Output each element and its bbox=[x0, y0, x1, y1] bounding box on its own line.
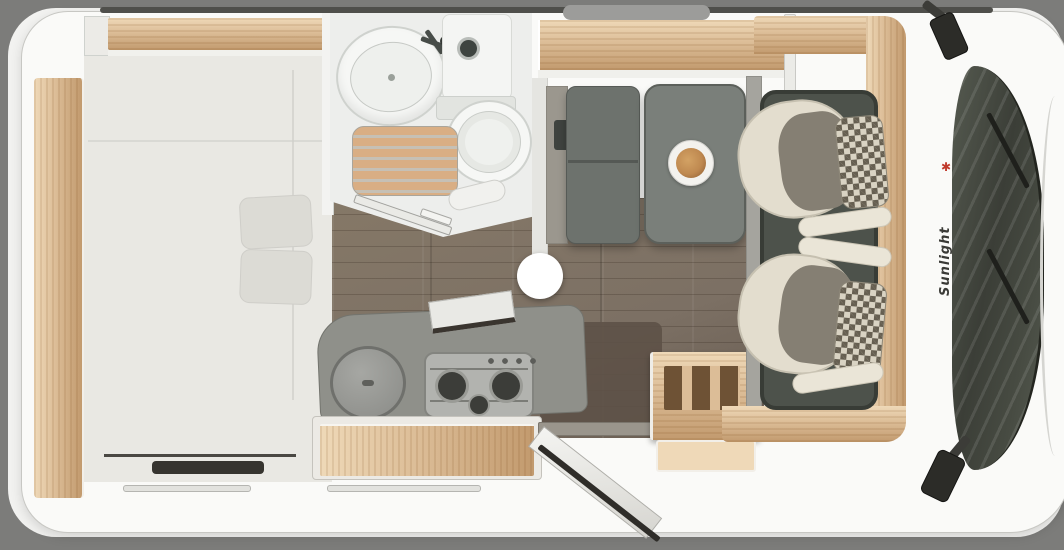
heater-vent bbox=[152, 461, 264, 474]
passenger-headrest bbox=[832, 280, 888, 376]
dinette-bench bbox=[566, 86, 640, 244]
kitchen-drawers-front bbox=[320, 424, 534, 476]
driver-headrest bbox=[834, 114, 890, 210]
toilet-seat bbox=[458, 112, 520, 172]
roof-edge-line bbox=[100, 7, 993, 13]
sink-drain bbox=[388, 74, 395, 81]
hob-grate-line bbox=[430, 368, 528, 370]
shelf-end-box bbox=[84, 16, 110, 56]
bench-side-panel bbox=[546, 86, 568, 244]
pillow bbox=[239, 249, 313, 305]
hob-burner bbox=[492, 372, 520, 400]
bed-foot-trim-line bbox=[104, 454, 296, 457]
rear-wall-wood-panel bbox=[34, 78, 84, 498]
skirt-handle bbox=[327, 485, 481, 492]
hob-burner-small bbox=[470, 396, 488, 414]
overhead-locker-dinette bbox=[538, 20, 786, 70]
shower-knob bbox=[460, 40, 477, 57]
brand-logo-mark: ✱ bbox=[938, 160, 954, 176]
sink-lid-handle bbox=[362, 380, 374, 386]
panorama-hotspot-marker[interactable] bbox=[517, 253, 563, 299]
plate-food bbox=[676, 148, 706, 178]
bench-cushion-split bbox=[568, 160, 638, 163]
bottle-rack-slots bbox=[664, 366, 740, 410]
shower-column bbox=[442, 14, 512, 100]
floorplan-canvas: ✱ Sunlight bbox=[0, 0, 1064, 550]
roof-vent bbox=[563, 5, 710, 20]
cabinet-drawer bbox=[656, 440, 756, 472]
skirt-handle bbox=[123, 485, 251, 492]
brand-logo-text: Sunlight bbox=[936, 176, 956, 346]
mattress-seam-horizontal bbox=[88, 140, 328, 142]
hood-contour-line bbox=[1040, 96, 1064, 456]
overhead-locker-bed bbox=[108, 18, 326, 50]
cab-wood-trim-bottom bbox=[722, 406, 906, 442]
shower-duckboard bbox=[352, 126, 458, 196]
hob-burner bbox=[438, 372, 466, 400]
hob-control-knobs bbox=[484, 357, 536, 365]
entry-threshold-step bbox=[538, 422, 660, 436]
pillow bbox=[239, 194, 314, 250]
